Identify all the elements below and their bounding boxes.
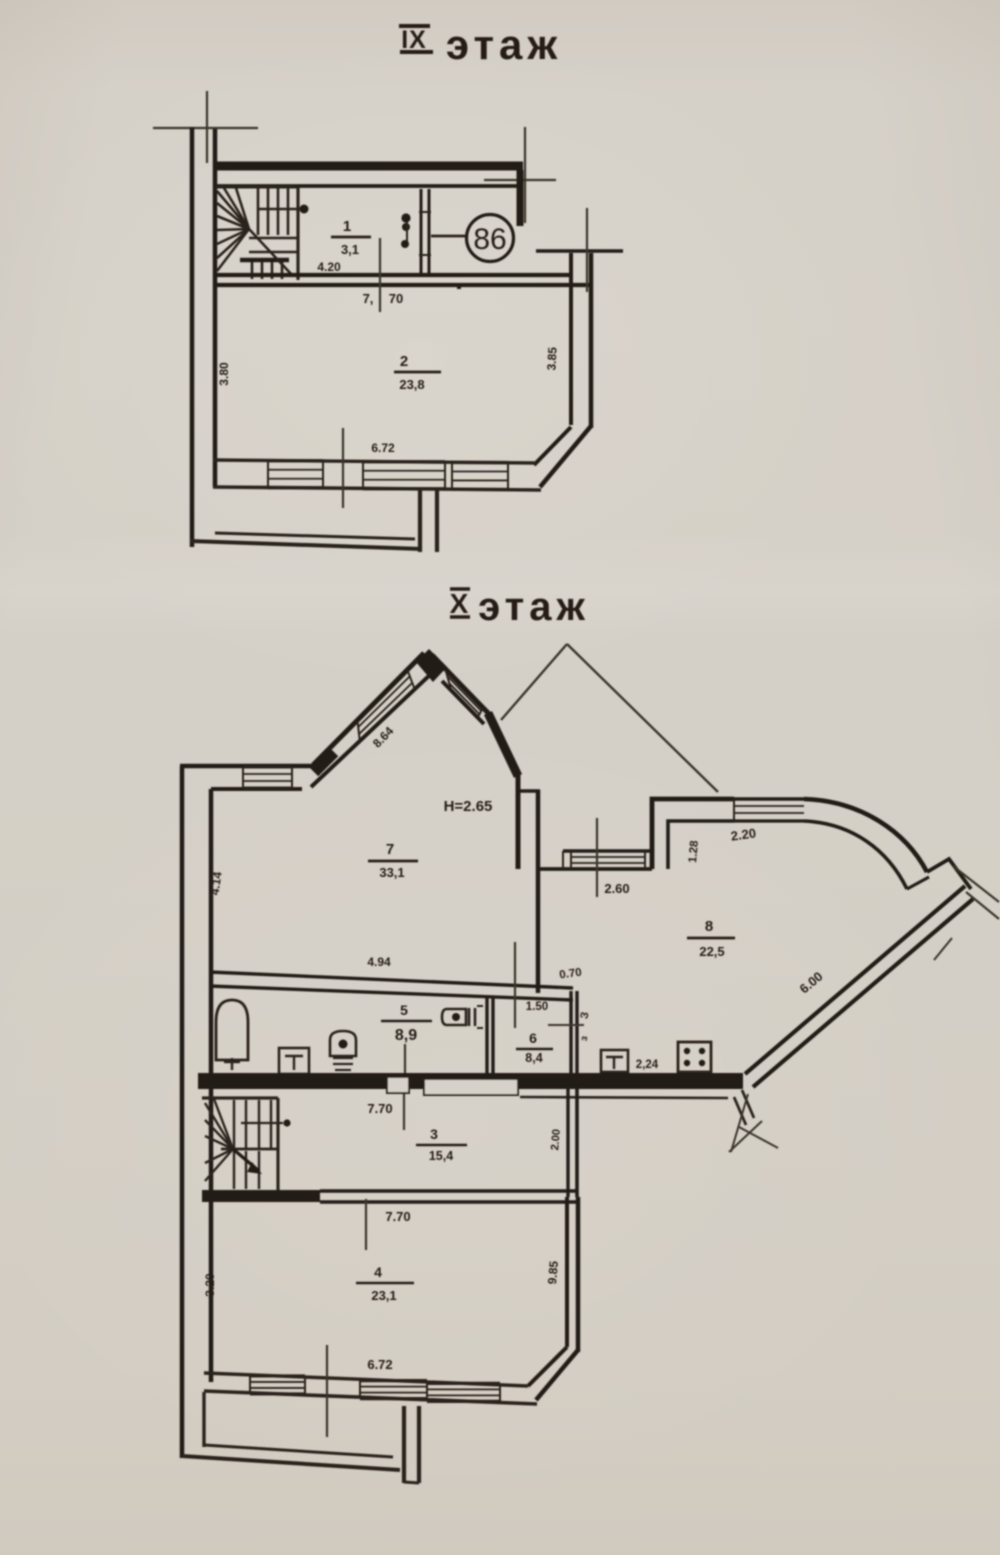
svg-text:8,4: 8,4 [525, 1051, 542, 1065]
svg-text:8: 8 [705, 918, 713, 935]
svg-text:4.14: 4.14 [207, 871, 224, 896]
svg-text:9.85: 9.85 [545, 1260, 561, 1285]
svg-text:4: 4 [374, 1264, 382, 1280]
svg-text:1: 1 [343, 218, 351, 235]
svg-text:3.80: 3.80 [217, 362, 231, 386]
svg-text:86: 86 [473, 223, 506, 256]
svg-text:1.50: 1.50 [526, 1001, 548, 1013]
svg-text:2.60: 2.60 [604, 881, 629, 896]
svg-text:23,1: 23,1 [371, 1288, 396, 1303]
svg-text:3,1: 3,1 [341, 242, 359, 257]
svg-text:этаж: этаж [446, 21, 562, 68]
svg-text:IX: IX [401, 26, 427, 54]
svg-text:23,8: 23,8 [399, 377, 424, 392]
svg-text:2.00: 2.00 [549, 1129, 563, 1151]
svg-text:X: X [450, 588, 469, 619]
svg-text:7,: 7, [363, 291, 374, 306]
svg-text:3: 3 [430, 1126, 438, 1142]
svg-text:6.72: 6.72 [371, 441, 395, 455]
svg-text:2: 2 [400, 353, 408, 370]
svg-text:2,24: 2,24 [636, 1059, 659, 1071]
svg-text:этаж: этаж [478, 585, 590, 629]
svg-text:0.70: 0.70 [559, 967, 583, 982]
svg-text:2.20: 2.20 [730, 825, 757, 843]
svg-text:15,4: 15,4 [429, 1149, 453, 1163]
svg-text:8,9: 8,9 [395, 1027, 417, 1044]
svg-text:6.00: 6.00 [797, 969, 826, 997]
svg-text:7.70: 7.70 [367, 1101, 392, 1116]
svg-text:3.20: 3.20 [203, 1273, 217, 1297]
svg-text:З: З [579, 1011, 592, 1020]
svg-text:з: з [579, 1035, 591, 1042]
svg-text:7: 7 [386, 841, 394, 858]
svg-text:3.85: 3.85 [544, 346, 559, 370]
svg-text:22,5: 22,5 [699, 944, 724, 959]
svg-text:4.20: 4.20 [317, 260, 341, 274]
svg-text:33,1: 33,1 [379, 865, 404, 880]
svg-text:H=2.65: H=2.65 [444, 798, 493, 815]
svg-text:1.28: 1.28 [687, 839, 701, 863]
svg-text:5: 5 [400, 1002, 408, 1018]
svg-text:70: 70 [389, 291, 403, 306]
svg-text:7.70: 7.70 [385, 1209, 410, 1224]
svg-text:4.94: 4.94 [367, 955, 391, 969]
svg-text:6: 6 [529, 1030, 537, 1046]
svg-text:6.72: 6.72 [367, 1357, 392, 1372]
